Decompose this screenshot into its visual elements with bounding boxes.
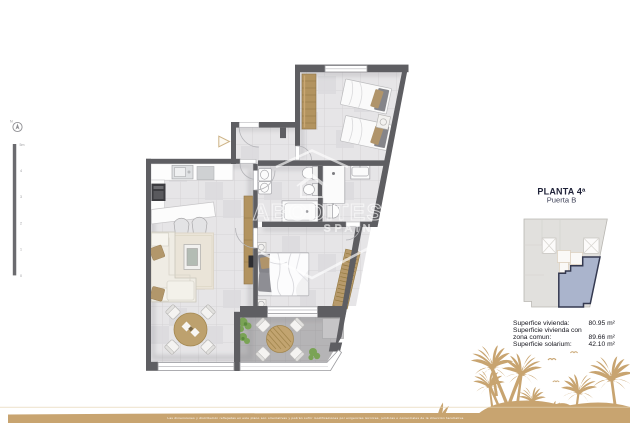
svg-text:80.95 m²: 80.95 m² xyxy=(589,320,616,327)
svg-text:4: 4 xyxy=(20,169,22,173)
svg-text:Superfice vivienda:: Superfice vivienda: xyxy=(513,320,570,327)
svg-text:Superficie vivienda con: Superficie vivienda con xyxy=(513,327,582,334)
svg-text:3: 3 xyxy=(20,195,22,199)
svg-text:Las dimensiones y distribución: Las dimensiones y distribución reflejada… xyxy=(167,416,464,420)
svg-text:N: N xyxy=(10,120,13,124)
svg-text:42.10 m²: 42.10 m² xyxy=(589,341,616,348)
svg-text:2: 2 xyxy=(20,221,22,225)
svg-text:Superficie solarium:: Superficie solarium: xyxy=(513,341,572,348)
svg-text:0: 0 xyxy=(20,274,22,278)
svg-text:SPAIN: SPAIN xyxy=(324,223,375,235)
svg-text:5m: 5m xyxy=(20,143,25,147)
svg-text:Puerta B: Puerta B xyxy=(547,195,577,204)
svg-text:ABODITES: ABODITES xyxy=(253,199,384,225)
svg-text:1: 1 xyxy=(20,248,22,252)
